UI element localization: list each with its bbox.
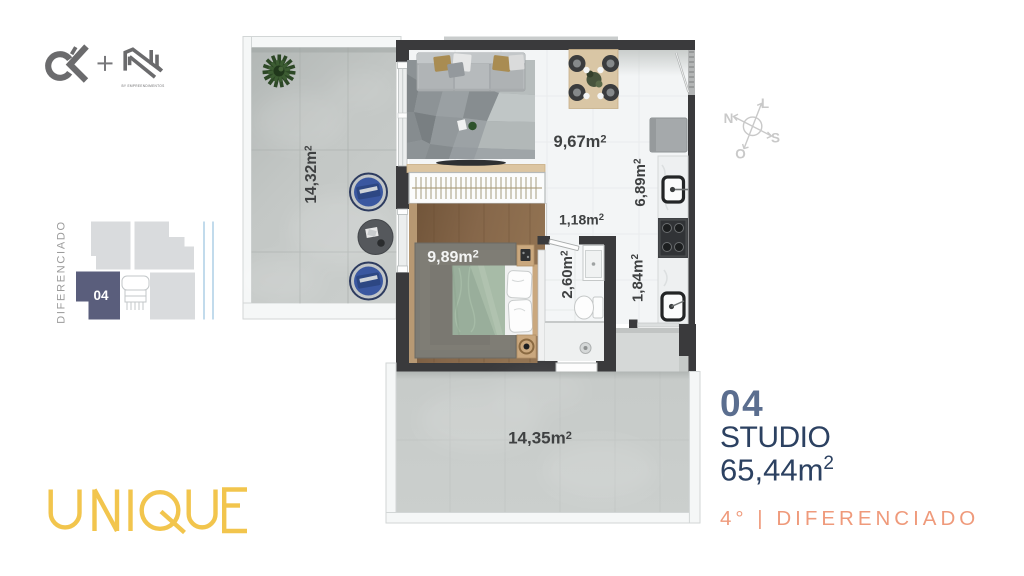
svg-text:S: S [771, 131, 780, 146]
svg-text:14,32m2: 14,32m2 [303, 145, 320, 204]
svg-text:1,18m2: 1,18m2 [559, 212, 604, 228]
svg-text:2,60m2: 2,60m2 [559, 250, 576, 299]
svg-text:6,89m2: 6,89m2 [632, 158, 649, 207]
svg-text:14,35m2: 14,35m2 [508, 429, 572, 448]
svg-text:L: L [761, 96, 769, 111]
svg-text:9,89m2: 9,89m2 [427, 249, 479, 267]
svg-text:04: 04 [93, 288, 109, 303]
svg-text:N: N [724, 111, 734, 126]
svg-text:1,84m2: 1,84m2 [630, 254, 647, 303]
svg-text:BY EMPREENDIMENTOS: BY EMPREENDIMENTOS [121, 84, 164, 88]
svg-text:9,67m2: 9,67m2 [554, 133, 607, 151]
svg-text:O: O [735, 147, 746, 162]
svg-text:DIFERENCIADO: DIFERENCIADO [56, 220, 68, 324]
